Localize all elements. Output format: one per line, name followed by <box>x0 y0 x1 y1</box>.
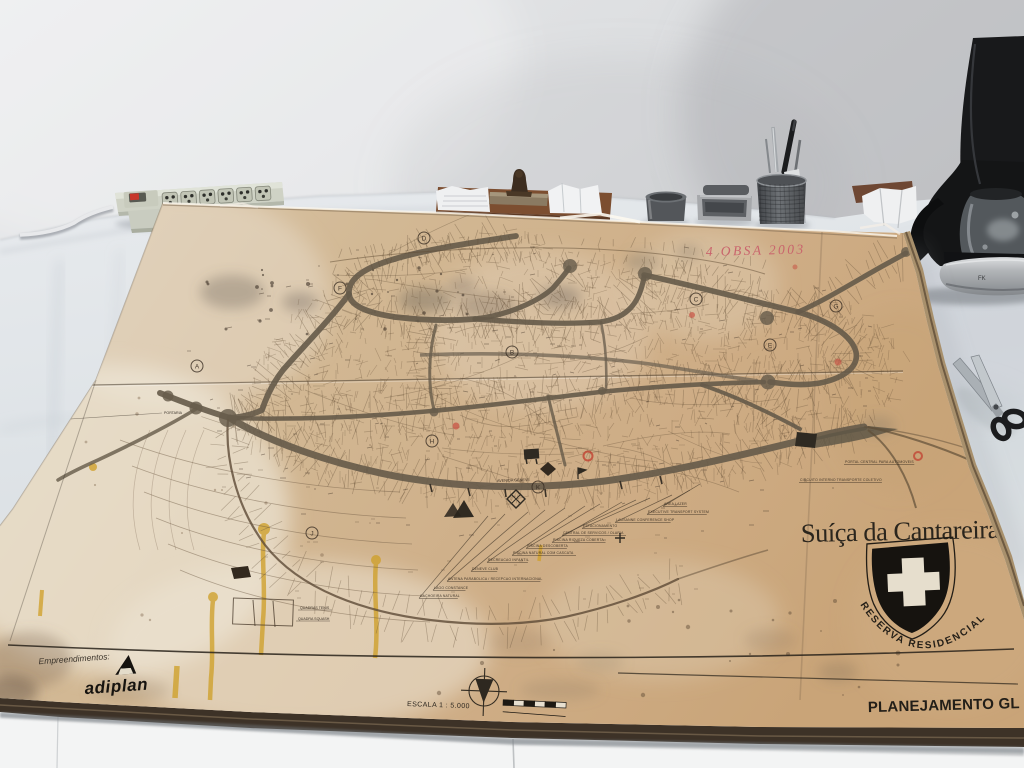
svg-text:PORTAL CENTRAL PARA AUTOMOV: PORTAL CENTRAL PARA AUTOMOVEIS <box>845 460 914 464</box>
svg-text:PISCINA NATURAL COM CASCATA: PISCINA NATURAL COM CASCATA <box>513 551 574 555</box>
svg-text:LAGO CONSTANCE: LAGO CONSTANCE <box>434 586 469 590</box>
svg-text:QUADRAS TENIS: QUADRAS TENIS <box>300 606 330 610</box>
svg-text:H: H <box>430 438 435 445</box>
svg-text:PISCINA RIQUEZA COBERTA: PISCINA RIQUEZA COBERTA <box>553 538 604 542</box>
svg-text:Suíça da Cantareira: Suíça da Cantareira <box>801 514 1000 548</box>
svg-text:CACHOEIRA NATURAL: CACHOEIRA NATURAL <box>420 594 460 598</box>
svg-text:EXECUTIVE TRANSPORT SYSTEM: EXECUTIVE TRANSPORT SYSTEM <box>648 510 709 514</box>
svg-text:4 OBSA 2003: 4 OBSA 2003 <box>706 241 806 259</box>
svg-text:FK: FK <box>978 276 986 282</box>
svg-text:J: J <box>310 530 313 537</box>
svg-text:G: G <box>833 303 838 310</box>
svg-text:E: E <box>768 342 773 349</box>
svg-text:CENTRAL DE SERVICOS / OLARIA: CENTRAL DE SERVICOS / OLARIA <box>563 531 624 535</box>
svg-text:RECREACAO INFANTIL: RECREACAO INFANTIL <box>488 558 529 562</box>
svg-text:ANTENA PARABOLICA / RECEPCAO: ANTENA PARABOLICA / RECEPCAO INTERNACION… <box>448 577 542 581</box>
svg-text:QUADRA SQUASH: QUADRA SQUASH <box>298 617 330 621</box>
svg-text:F: F <box>338 285 342 292</box>
svg-text:CIRCUITO INTERNO TRANSPORTE: CIRCUITO INTERNO TRANSPORTE COLETIVO <box>800 478 882 482</box>
svg-text:C: C <box>694 296 699 303</box>
svg-text:A: A <box>195 363 200 370</box>
svg-text:D: D <box>422 235 427 242</box>
svg-text:B: B <box>510 349 514 356</box>
svg-text:PISCINA DESCOBERTA: PISCINA DESCOBERTA <box>527 544 569 548</box>
svg-text:K: K <box>536 484 541 491</box>
svg-text:ESTACIONAMENTO: ESTACIONAMENTO <box>583 524 617 528</box>
svg-text:PORTARIA: PORTARIA <box>164 411 183 415</box>
svg-text:LAUSANNE CONFERENCE SHOP: LAUSANNE CONFERENCE SHOP <box>616 518 675 522</box>
